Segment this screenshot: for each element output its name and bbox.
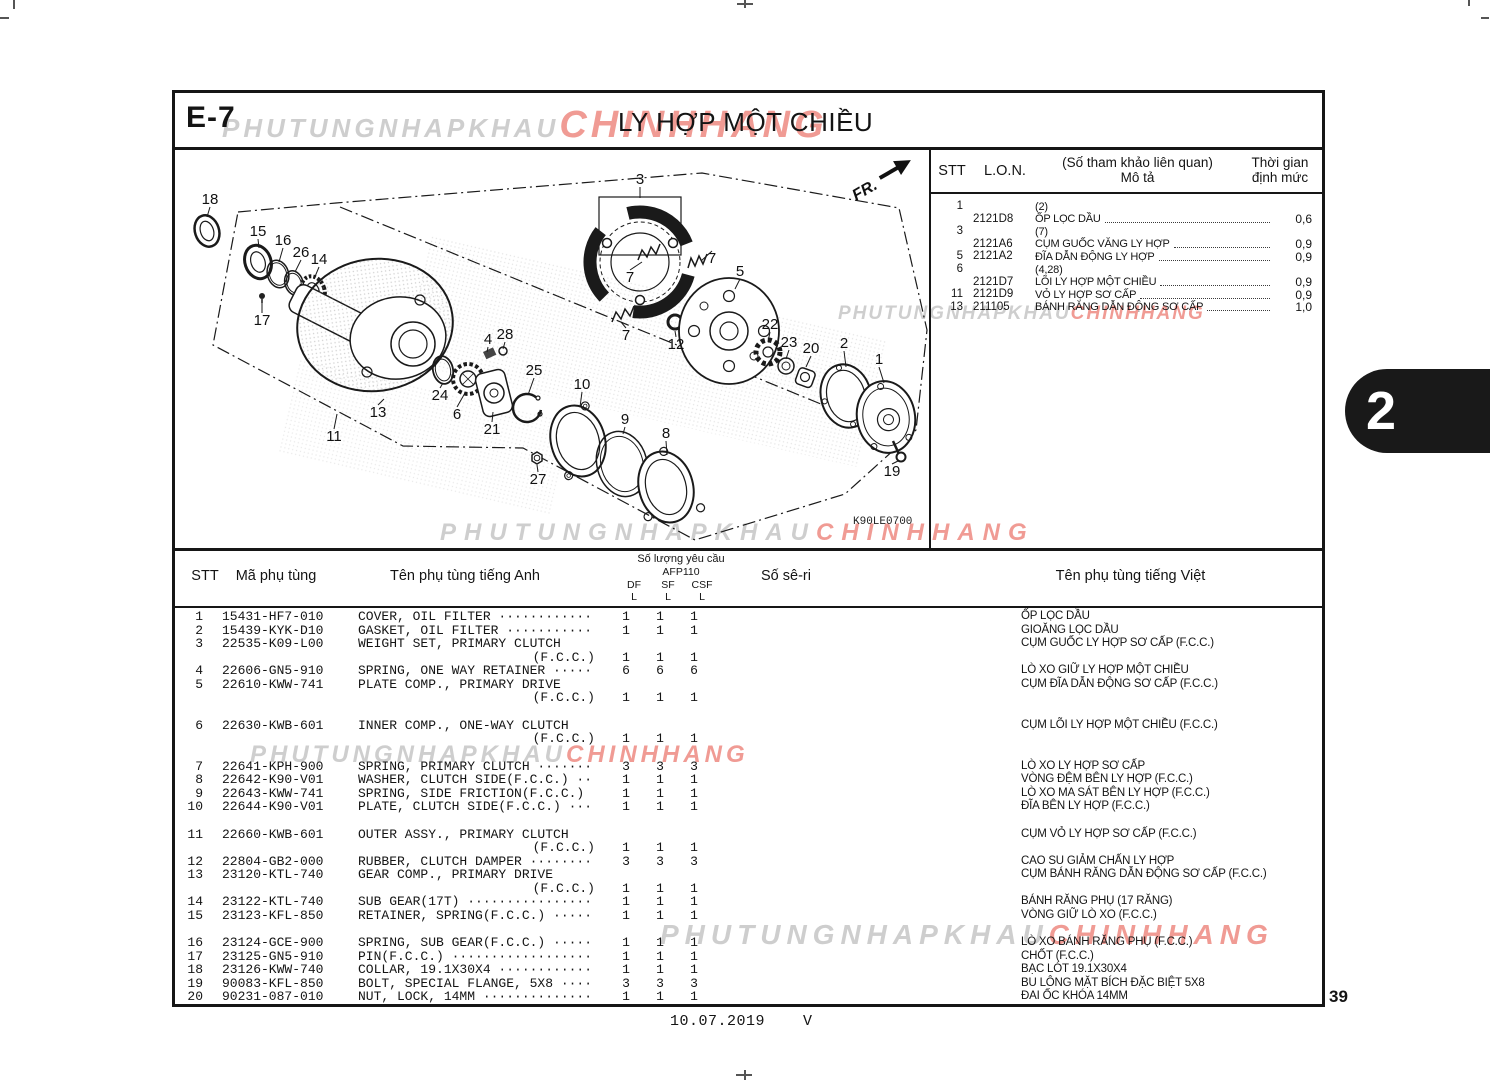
parts-table-row: 1423122-KTL-740SUB GEAR(17T) ···········… [175, 895, 1322, 909]
col-qty-group: Số lượng yêu cầu [596, 553, 766, 565]
crop-mark [737, 3, 753, 5]
ref-table-row: 2121D7LÕI LY HỢP MỘT CHIỀU0,9 [933, 276, 1316, 289]
col-qty-sub: L [651, 591, 685, 603]
ref-table-row: 52121A2ĐĨA DẪN ĐỘNG LY HỢP0,9 [933, 250, 1316, 263]
parts-table-body: 115431-HF7-010COVER, OIL FILTER ········… [175, 606, 1322, 1004]
page-frame: E-7 LY HỢP MỘT CHIỀU STT L.O.N. (Số tham… [172, 90, 1325, 1007]
parts-table-row: 1022644-K90-V01PLATE, CLUTCH SIDE(F.C.C.… [175, 800, 1322, 814]
parts-table-row: 322535-K09-L00WEIGHT SET, PRIMARY CLUTCH… [175, 637, 1322, 651]
parts-table-row: 1122660-KWB-601OUTER ASSY., PRIMARY CLUT… [175, 828, 1322, 842]
col-serial: Số sê-ri [726, 568, 846, 584]
reference-table-header: STT L.O.N. (Số tham khảo liên quan) Mô t… [931, 150, 1322, 194]
page-title: LY HỢP MỘT CHIỀU [618, 107, 873, 138]
ref-table-row: 2121D8ỐP LỌC DẦU0,6 [933, 213, 1316, 226]
parts-table-row: 1990083-KFL-850BOLT, SPECIAL FLANGE, 5X8… [175, 977, 1322, 991]
crop-mark [0, 17, 9, 19]
ref-col-stt: STT [931, 163, 973, 179]
col-name-en: Tên phụ tùng tiếng Anh [365, 568, 565, 584]
parts-table-row: 1623124-GCE-900SPRING, SUB GEAR(F.C.C.) … [175, 936, 1322, 950]
ref-col-time: Thời gian định mức [1238, 156, 1322, 185]
ref-table-row: 1(2) [933, 200, 1316, 213]
reference-table-rows: 1(2)2121D8ỐP LỌC DẦU0,63(7)2121A6CỤM GUỐ… [931, 194, 1322, 313]
page-header: E-7 LY HỢP MỘT CHIỀU [175, 93, 1322, 150]
parts-table-row: 2090231-087-010NUT, LOCK, 14MM ·········… [175, 990, 1322, 1004]
ref-table-row: 2121A6CỤM GUỐC VĂNG LY HỢP0,9 [933, 238, 1316, 251]
col-qty-df: DF [617, 579, 651, 591]
col-qty-csf: CSF [685, 579, 719, 591]
parts-table-row: 922643-KWW-741SPRING, SIDE FRICTION(F.C.… [175, 787, 1322, 801]
crop-mark [1481, 17, 1489, 19]
catalog-page: PHUTUNGNHAPKHAUCHINHHANGPHUTUNGNHAPKHAUC… [0, 0, 1490, 1080]
ref-table-row: 6(4,28) [933, 263, 1316, 276]
ref-table-row: 112121D9VỎ LY HỢP SƠ CẤP0,9 [933, 288, 1316, 301]
parts-table-row: 422606-GN5-910SPRING, ONE WAY RETAINER ·… [175, 664, 1322, 678]
crop-mark [13, 0, 15, 9]
parts-table-row: 722641-KPH-900SPRING, PRIMARY CLUTCH ···… [175, 760, 1322, 774]
parts-table-row: 1723125-GN5-910PIN(F.C.C.) ·············… [175, 950, 1322, 964]
col-code: Mã phụ tùng [211, 568, 341, 584]
parts-table-row: 622630-KWB-601INNER COMP., ONE-WAY CLUTC… [175, 719, 1322, 733]
col-qty-sub: L [685, 591, 719, 603]
section-tab: 2 [1345, 369, 1490, 453]
ref-table-row: 13211105BÁNH RĂNG DẪN ĐỘNG SƠ CẤP1,0 [933, 301, 1316, 314]
parts-table-header: STT Mã phụ tùng Tên phụ tùng tiếng Anh S… [175, 548, 1322, 608]
parts-table-row: 215439-KYK-D10GASKET, OIL FILTER ·······… [175, 624, 1322, 638]
col-qty-sf: SF [651, 579, 685, 591]
crop-mark [736, 1074, 752, 1076]
parts-table-row-cont: (F.C.C.)111 [175, 882, 1322, 896]
parts-table-row: 822642-K90-V01WASHER, CLUTCH SIDE(F.C.C.… [175, 773, 1322, 787]
parts-table-row: 115431-HF7-010COVER, OIL FILTER ········… [175, 610, 1322, 624]
ref-col-lon: L.O.N. [973, 163, 1037, 179]
parts-table-row-cont: (F.C.C.)111 [175, 732, 1322, 746]
col-name-vn: Tên phụ tùng tiếng Việt [1023, 568, 1238, 584]
parts-table-row: 1523123-KFL-850RETAINER, SPRING(F.C.C.) … [175, 909, 1322, 923]
section-code: E-7 [186, 101, 236, 135]
parts-table-row: 1323120-KTL-740GEAR COMP., PRIMARY DRIVE… [175, 868, 1322, 882]
parts-table-row: 1823126-KWW-740COLLAR, 19.1X30X4 ·······… [175, 963, 1322, 977]
reference-table: STT L.O.N. (Số tham khảo liên quan) Mô t… [929, 150, 1322, 548]
parts-table-row-cont: (F.C.C.)111 [175, 651, 1322, 665]
ref-table-row: 3(7) [933, 225, 1316, 238]
crop-mark [1468, 0, 1470, 6]
ref-col-desc: (Số tham khảo liên quan) Mô tả [1037, 156, 1238, 185]
footer-version-mark: V [803, 1013, 812, 1030]
col-qty-model: AFP110 [621, 566, 741, 578]
parts-table-row: 522610-KWW-741PLATE COMP., PRIMARY DRIVE… [175, 678, 1322, 692]
parts-table-row-cont: (F.C.C.)111 [175, 841, 1322, 855]
parts-table-row: 1222804-GB2-000RUBBER, CLUTCH DAMPER ···… [175, 855, 1322, 869]
col-qty-sub: L [617, 591, 651, 603]
footer-date: 10.07.2019 [670, 1013, 765, 1030]
page-number: 39 [1329, 987, 1348, 1007]
parts-table-row-cont: (F.C.C.)111 [175, 691, 1322, 705]
section-tab-number: 2 [1366, 384, 1396, 438]
